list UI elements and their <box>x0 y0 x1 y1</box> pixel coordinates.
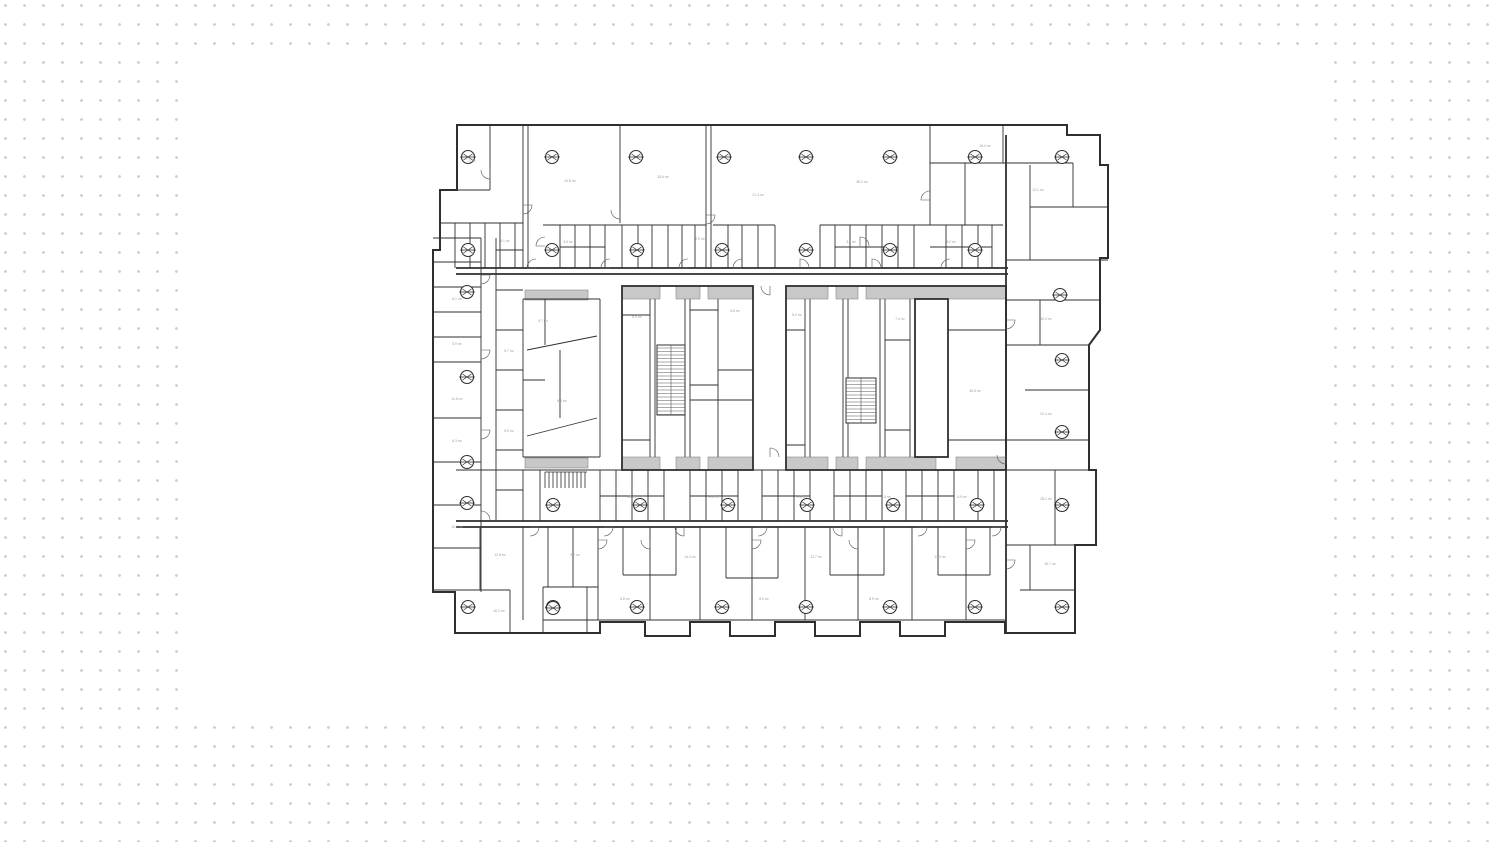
svg-text:38.2 m²: 38.2 m² <box>856 180 868 184</box>
svg-text:6.1 m²: 6.1 m² <box>452 297 462 301</box>
svg-text:24.8 m²: 24.8 m² <box>564 179 576 183</box>
svg-text:8.5 m²: 8.5 m² <box>759 597 769 601</box>
svg-text:5.5 m²: 5.5 m² <box>504 429 514 433</box>
svg-text:15.3 m²: 15.3 m² <box>1040 317 1052 321</box>
svg-text:28.1 m²: 28.1 m² <box>1040 497 1052 501</box>
svg-text:8.8 m²: 8.8 m² <box>620 597 630 601</box>
svg-text:12.6 m²: 12.6 m² <box>494 553 506 557</box>
svg-text:4.8 m²: 4.8 m² <box>797 495 807 499</box>
svg-text:4.4 m²: 4.4 m² <box>709 495 719 499</box>
svg-text:4.2 m²: 4.2 m² <box>946 240 956 244</box>
svg-text:13.7 m²: 13.7 m² <box>810 555 822 559</box>
svg-text:21.4 m²: 21.4 m² <box>752 193 764 197</box>
svg-text:16.4 m²: 16.4 m² <box>979 144 991 148</box>
floor-plan: 24.8 m²18.6 m²21.4 m²38.2 m²16.4 m²12.1 … <box>430 113 1112 643</box>
svg-text:4.6 m²: 4.6 m² <box>627 495 637 499</box>
svg-text:9.7 m²: 9.7 m² <box>538 319 548 323</box>
svg-text:4.1 m²: 4.1 m² <box>500 239 510 243</box>
svg-text:5.4 m²: 5.4 m² <box>632 315 642 319</box>
svg-text:14.3 m²: 14.3 m² <box>684 555 696 559</box>
svg-text:9.2 m²: 9.2 m² <box>570 553 580 557</box>
svg-text:18.7 m²: 18.7 m² <box>1044 562 1056 566</box>
svg-text:11.8 m²: 11.8 m² <box>451 397 463 401</box>
svg-text:8.9 m²: 8.9 m² <box>869 597 879 601</box>
svg-text:4.9 m²: 4.9 m² <box>957 495 967 499</box>
svg-text:22.4 m²: 22.4 m² <box>1040 412 1052 416</box>
svg-text:5.9 m²: 5.9 m² <box>452 342 462 346</box>
svg-text:7.4 m²: 7.4 m² <box>895 317 905 321</box>
svg-text:18.6 m²: 18.6 m² <box>657 175 669 179</box>
svg-text:12.1 m²: 12.1 m² <box>1032 188 1044 192</box>
svg-text:8.3 m²: 8.3 m² <box>557 399 567 403</box>
svg-text:5.2 m²: 5.2 m² <box>792 313 802 317</box>
svg-text:4.5 m²: 4.5 m² <box>881 495 891 499</box>
svg-text:16.2 m²: 16.2 m² <box>493 609 505 613</box>
svg-text:13.2 m²: 13.2 m² <box>934 555 946 559</box>
svg-text:6.8 m²: 6.8 m² <box>730 309 740 313</box>
svg-text:5.7 m²: 5.7 m² <box>504 349 514 353</box>
svg-text:6.3 m²: 6.3 m² <box>452 439 462 443</box>
svg-text:7.2 m²: 7.2 m² <box>466 159 476 163</box>
svg-text:10.4 m²: 10.4 m² <box>451 525 463 529</box>
svg-text:3.8 m²: 3.8 m² <box>846 240 856 244</box>
svg-text:2.9 m²: 2.9 m² <box>695 237 705 241</box>
svg-text:30.6 m²: 30.6 m² <box>969 389 981 393</box>
svg-text:3.6 m²: 3.6 m² <box>563 240 573 244</box>
